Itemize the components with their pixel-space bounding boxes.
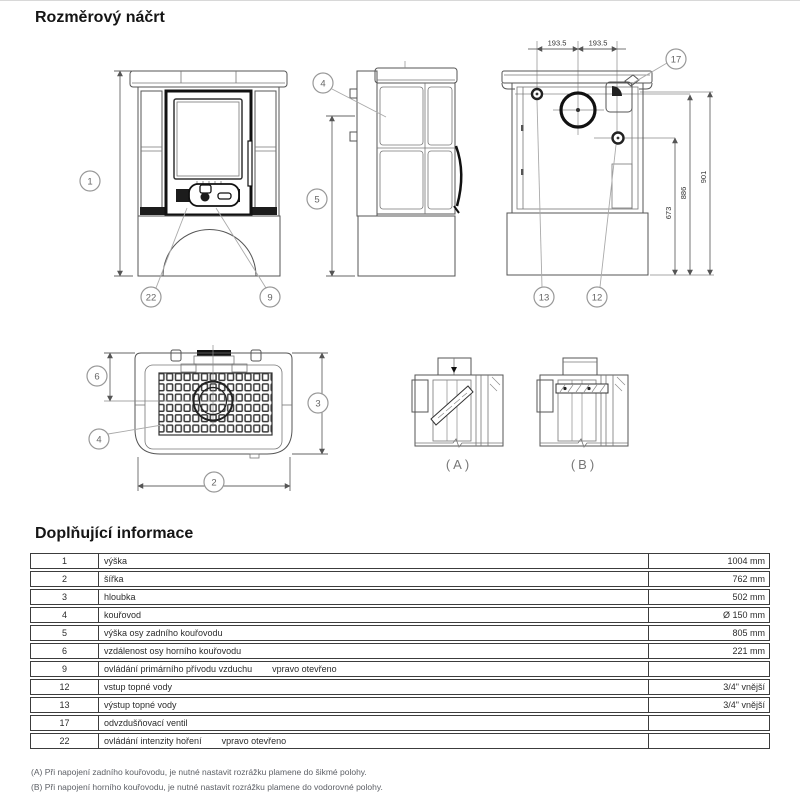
rear-top-shelf bbox=[502, 71, 652, 83]
row-value bbox=[648, 716, 769, 730]
row-number: 5 bbox=[31, 626, 99, 640]
front-base-arch bbox=[163, 230, 256, 277]
section-view-b: (B) bbox=[537, 358, 628, 472]
front-door-glass bbox=[174, 99, 242, 179]
svg-text:17: 17 bbox=[671, 54, 682, 65]
row-label: vzdálenost osy horního kouřovodu bbox=[104, 646, 241, 656]
rear-view: 193.5 193.5 673 886 901 17 13 12 bbox=[502, 39, 714, 308]
callout-17: 17 bbox=[666, 49, 686, 69]
row-value bbox=[648, 734, 769, 748]
svg-text:13: 13 bbox=[539, 292, 550, 303]
row-value: 805 mm bbox=[648, 626, 769, 640]
row-number: 17 bbox=[31, 716, 99, 730]
side-body bbox=[377, 83, 455, 214]
row-number: 4 bbox=[31, 608, 99, 622]
row-number: 6 bbox=[31, 644, 99, 658]
row-label: odvzdušňovací ventil bbox=[104, 718, 188, 728]
table-row: 2 šířka 762 mm bbox=[30, 571, 770, 587]
info-section-title: Doplňující informace bbox=[35, 525, 193, 543]
row-note: vpravo otevřeno bbox=[222, 736, 287, 746]
dim-193-5-left: 193.5 bbox=[548, 39, 567, 48]
front-view: 1 22 9 bbox=[80, 71, 287, 307]
svg-text:1: 1 bbox=[87, 176, 92, 187]
callout-2: 2 bbox=[204, 472, 224, 492]
info-table: 1 výška 1004 mm 2 šířka 762 mm 3 hloubka… bbox=[30, 553, 770, 751]
front-base bbox=[138, 216, 280, 276]
table-row: 3 hloubka 502 mm bbox=[30, 589, 770, 605]
row-note: vpravo otevřeno bbox=[272, 664, 337, 674]
view-b-label: (B) bbox=[571, 457, 597, 472]
callout-4-top: 4 bbox=[89, 429, 109, 449]
row-label: vstup topné vody bbox=[104, 682, 172, 692]
row-number: 12 bbox=[31, 680, 99, 694]
datasheet-page: Rozměrový náčrt bbox=[0, 0, 800, 801]
dim-901: 901 bbox=[699, 171, 708, 184]
table-row: 17 odvzdušňovací ventil bbox=[30, 715, 770, 731]
callout-5: 5 bbox=[307, 189, 327, 209]
row-number: 1 bbox=[31, 554, 99, 568]
front-door-handle bbox=[248, 141, 252, 186]
svg-text:9: 9 bbox=[267, 292, 272, 303]
rear-base bbox=[507, 213, 648, 275]
callout-13: 13 bbox=[534, 287, 554, 307]
row-number: 2 bbox=[31, 572, 99, 586]
row-number: 3 bbox=[31, 590, 99, 604]
table-row: 12 vstup topné vody 3/4" vnější bbox=[30, 679, 770, 695]
callout-6: 6 bbox=[87, 366, 107, 386]
view-a-label: (A) bbox=[446, 457, 472, 472]
air-vent-valve bbox=[606, 75, 639, 112]
dimensional-drawing: 1 22 9 bbox=[0, 1, 800, 521]
footnotes: (A) Při napojení zadního kouřovodu, je n… bbox=[31, 765, 383, 795]
row-label: ovládání primárního přívodu vzduchu bbox=[104, 664, 252, 674]
side-base bbox=[358, 216, 455, 276]
row-label: ovládání intenzity hoření bbox=[104, 736, 202, 746]
side-top-shelf bbox=[375, 68, 457, 83]
row-value: 1004 mm bbox=[648, 554, 769, 568]
callout-9: 9 bbox=[260, 287, 280, 307]
row-value: 3/4" vnější bbox=[648, 698, 769, 712]
row-label: kouřovod bbox=[104, 610, 141, 620]
row-label: výstup topné vody bbox=[104, 700, 177, 710]
row-value: 502 mm bbox=[648, 590, 769, 604]
footnote-a: (A) Při napojení zadního kouřovodu, je n… bbox=[31, 765, 383, 780]
svg-text:6: 6 bbox=[94, 371, 99, 382]
table-row: 13 výstup topné vody 3/4" vnější bbox=[30, 697, 770, 713]
table-row: 1 výška 1004 mm bbox=[30, 553, 770, 569]
svg-text:12: 12 bbox=[592, 292, 603, 303]
table-row: 9 ovládání primárního přívodu vzduchuvpr… bbox=[30, 661, 770, 677]
front-control-knob bbox=[201, 193, 210, 202]
row-label: výška osy zadního kouřovodu bbox=[104, 628, 223, 638]
row-value: 221 mm bbox=[648, 644, 769, 658]
svg-text:22: 22 bbox=[146, 292, 157, 303]
svg-text:4: 4 bbox=[96, 434, 101, 445]
down-arrow-icon bbox=[451, 367, 457, 373]
table-row: 5 výška osy zadního kouřovodu 805 mm bbox=[30, 625, 770, 641]
row-label: hloubka bbox=[104, 592, 136, 602]
side-door-handle bbox=[456, 146, 461, 206]
front-control-lever bbox=[218, 193, 231, 199]
flame-baffle-inclined bbox=[431, 386, 473, 425]
front-top-shelf bbox=[130, 71, 287, 87]
row-number: 9 bbox=[31, 662, 99, 676]
row-label: šířka bbox=[104, 574, 124, 584]
row-number: 22 bbox=[31, 734, 99, 748]
footnote-b: (B) Při napojení horního kouřovodu, je n… bbox=[31, 780, 383, 795]
row-number: 13 bbox=[31, 698, 99, 712]
callout-22: 22 bbox=[141, 287, 161, 307]
callout-3: 3 bbox=[308, 393, 328, 413]
callout-12: 12 bbox=[587, 287, 607, 307]
section-view-a: (A) bbox=[412, 358, 503, 472]
row-value: 3/4" vnější bbox=[648, 680, 769, 694]
row-value: Ø 150 mm bbox=[648, 608, 769, 622]
dim-886: 886 bbox=[679, 187, 688, 200]
rear-body bbox=[512, 83, 643, 213]
top-view: 6 3 2 4 bbox=[87, 345, 328, 492]
callout-4-side: 4 bbox=[313, 73, 333, 93]
dim-673: 673 bbox=[664, 207, 673, 220]
svg-text:4: 4 bbox=[320, 78, 325, 89]
side-view: 4 5 bbox=[307, 61, 461, 276]
table-row: 6 vzdálenost osy horního kouřovodu 221 m… bbox=[30, 643, 770, 659]
row-label: výška bbox=[104, 556, 127, 566]
svg-text:2: 2 bbox=[211, 477, 216, 488]
svg-text:3: 3 bbox=[315, 398, 320, 409]
table-row: 22 ovládání intenzity hořenívpravo otevř… bbox=[30, 733, 770, 749]
row-value bbox=[648, 662, 769, 676]
dim-193-5-right: 193.5 bbox=[589, 39, 608, 48]
callout-1: 1 bbox=[80, 171, 100, 191]
svg-text:5: 5 bbox=[314, 194, 319, 205]
table-row: 4 kouřovod Ø 150 mm bbox=[30, 607, 770, 623]
row-value: 762 mm bbox=[648, 572, 769, 586]
